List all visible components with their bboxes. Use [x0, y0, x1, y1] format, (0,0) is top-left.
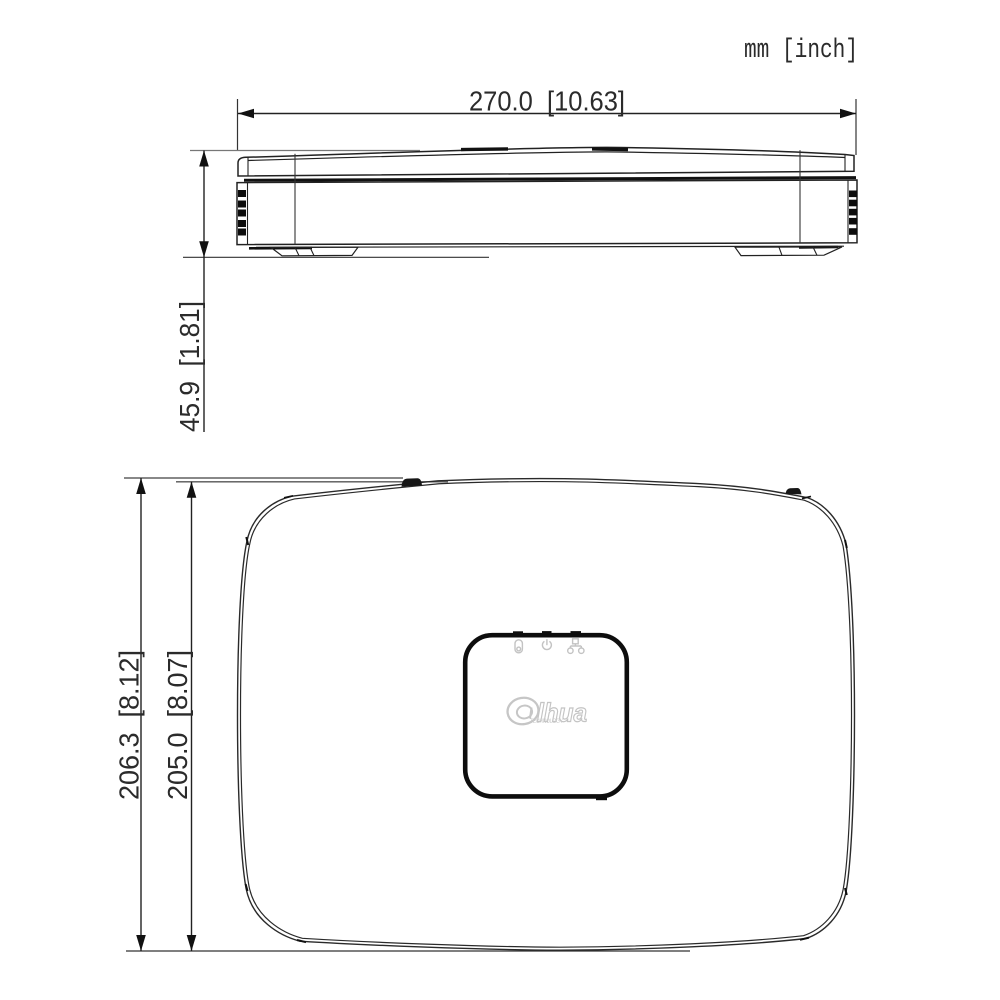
svg-text:TECHNOLOGY: TECHNOLOGY: [530, 719, 563, 725]
svg-text:45.9 [1.81]: 45.9 [1.81]: [174, 301, 205, 432]
svg-text:270.0 [10.63]: 270.0 [10.63]: [469, 86, 625, 117]
svg-text:205.0 [8.07]: 205.0 [8.07]: [162, 650, 193, 800]
svg-text:206.3 [8.12]: 206.3 [8.12]: [114, 650, 145, 800]
svg-text:mm [inch]: mm [inch]: [744, 36, 858, 66]
